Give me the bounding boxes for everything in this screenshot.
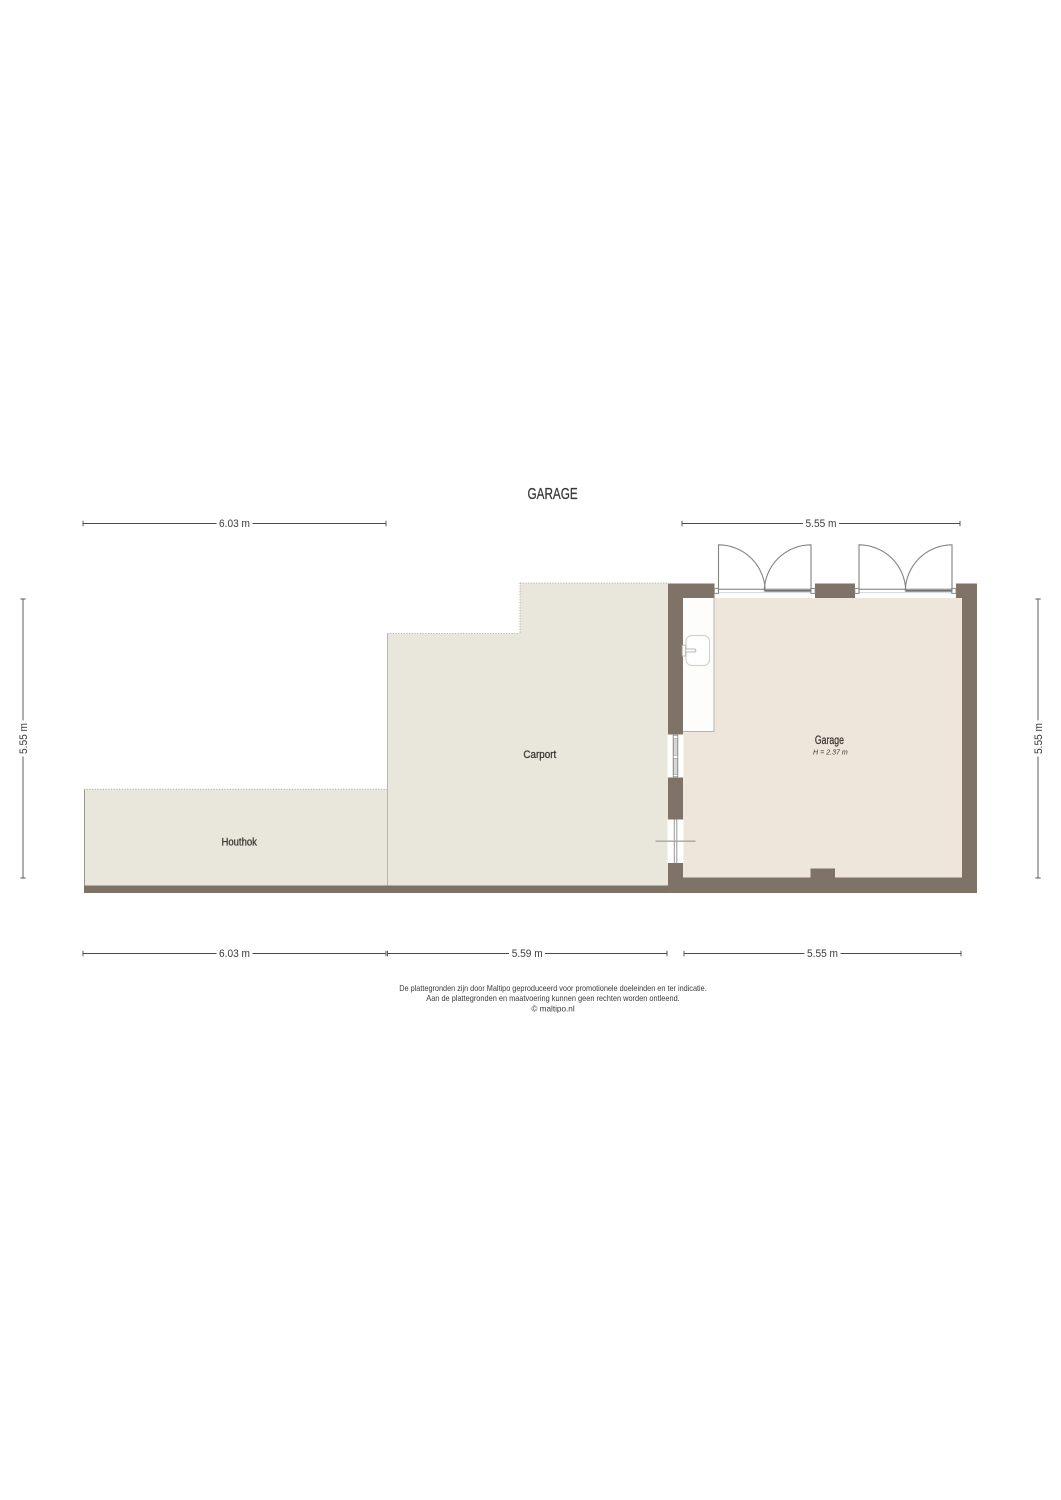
svg-text:H = 2.37 m: H = 2.37 m (813, 747, 848, 756)
svg-text:GARAGE: GARAGE (527, 484, 577, 502)
svg-text:6.03 m: 6.03 m (219, 518, 250, 530)
svg-text:De plattegronden zijn door Mal: De plattegronden zijn door Maltipo gepro… (399, 983, 706, 993)
svg-text:Garage: Garage (815, 735, 844, 747)
svg-text:Carport: Carport (523, 748, 556, 761)
svg-text:5.55 m: 5.55 m (17, 723, 29, 754)
svg-text:Aan de plattegronden en maatvo: Aan de plattegronden en maatvoering kunn… (426, 994, 679, 1003)
svg-text:5.55 m: 5.55 m (806, 518, 837, 530)
svg-text:5.59 m: 5.59 m (512, 948, 543, 960)
svg-text:Houthok: Houthok (221, 837, 257, 849)
svg-text:5.55 m: 5.55 m (807, 948, 838, 960)
svg-text:6.03 m: 6.03 m (219, 948, 250, 960)
svg-text:5.55 m: 5.55 m (1032, 723, 1044, 754)
svg-text:© maltipo.nl: © maltipo.nl (531, 1005, 575, 1014)
